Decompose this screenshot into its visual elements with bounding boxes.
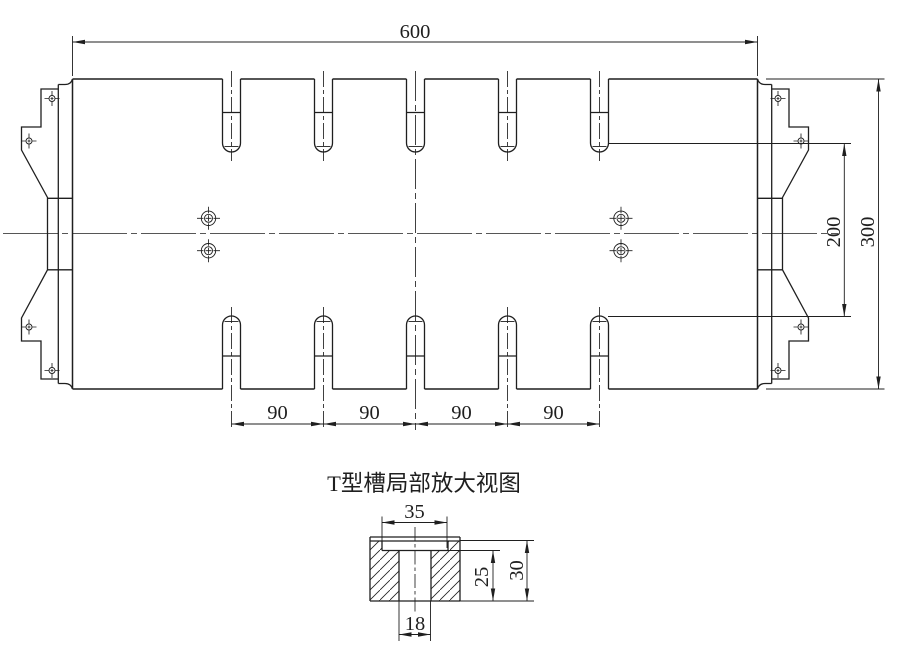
screw-mark: [22, 134, 37, 149]
locating-hole: [197, 239, 220, 262]
plate-outline: [73, 79, 758, 389]
screw-mark: [45, 91, 60, 106]
screw-mark: [45, 363, 60, 378]
dim-90-label-2: 90: [359, 402, 380, 424]
main-view: 600 300 200 90: [3, 21, 885, 430]
centerlines: [3, 71, 838, 430]
dim-25-label: 25: [471, 567, 493, 588]
dim-200-label: 200: [823, 217, 845, 248]
detail-view: T型槽局部放大视图 35 18: [327, 471, 534, 641]
dim-200: 200: [608, 144, 851, 317]
engineering-drawing: 600 300 200 90: [0, 0, 900, 648]
t-slot-top-4: [499, 79, 517, 152]
screw-mark: [771, 363, 786, 378]
screw-mark: [22, 320, 37, 335]
detail-view-title: T型槽局部放大视图: [327, 471, 521, 496]
dim-90-label-3: 90: [451, 402, 472, 424]
dim-90-label-4: 90: [543, 402, 564, 424]
screw-mark: [794, 320, 809, 335]
dim-35-label: 35: [404, 501, 425, 523]
locating-hole: [610, 239, 633, 262]
screw-mark: [771, 91, 786, 106]
bracket-screw-marks: [22, 91, 809, 378]
dim-90-label-1: 90: [267, 402, 288, 424]
screw-mark: [794, 134, 809, 149]
dim-600-label: 600: [400, 21, 431, 43]
locating-hole: [197, 207, 220, 230]
right-bracket-outline: [758, 79, 809, 389]
right-bracket-ledges: [758, 198, 783, 269]
t-slot-top-2: [315, 79, 333, 152]
dim-300-label: 300: [857, 217, 879, 248]
dim-30-label: 30: [506, 560, 528, 581]
left-bracket-outline: [22, 79, 73, 389]
left-bracket: [22, 79, 73, 389]
drawing-canvas: 600 300 200 90: [0, 0, 900, 648]
locating-hole: [610, 207, 633, 230]
left-bracket-ledges: [48, 198, 73, 269]
dim-600: 600: [73, 21, 758, 76]
dim-18-label: 18: [405, 613, 426, 635]
right-bracket: [758, 79, 809, 389]
t-slot-top-1: [223, 79, 241, 152]
t-slot-top-5: [591, 79, 609, 152]
locating-holes: [197, 207, 633, 262]
